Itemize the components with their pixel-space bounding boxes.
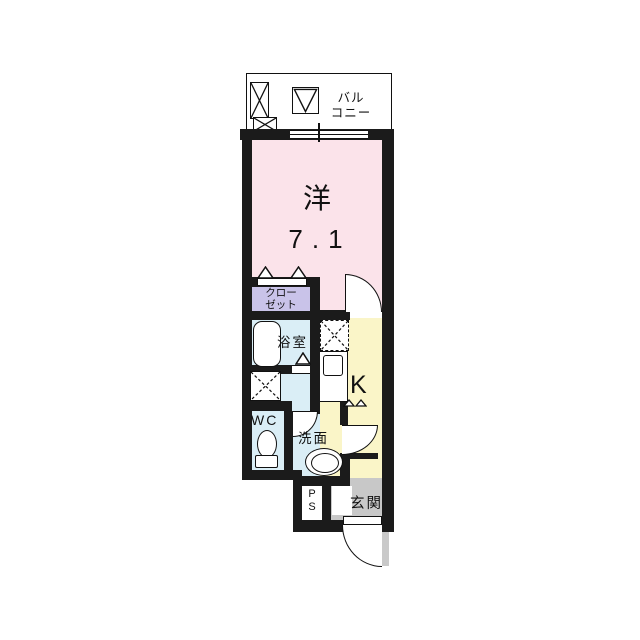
kitchen-caret-left bbox=[343, 399, 355, 407]
kitchen-label: K bbox=[350, 371, 367, 400]
wall-right bbox=[382, 129, 394, 532]
wall-outer-edge bbox=[382, 532, 389, 566]
wall-wc-top bbox=[242, 401, 292, 411]
triangle-down-icon bbox=[293, 88, 318, 113]
window-sliding bbox=[290, 130, 368, 139]
door-swing-entrance bbox=[342, 525, 382, 567]
bath-door-track bbox=[292, 365, 310, 374]
closet-fold-triangle-right bbox=[290, 266, 307, 279]
wall-wc-right bbox=[284, 411, 293, 470]
toilet-bowl-icon bbox=[257, 430, 277, 458]
bath-label: 浴室 bbox=[277, 331, 308, 351]
window-center-tick bbox=[318, 123, 320, 142]
balcony-storage-box bbox=[250, 82, 269, 119]
closet-label: クロー ゼット bbox=[252, 287, 310, 311]
western-room-label: 洋 7.1 bbox=[252, 177, 382, 255]
refrigerator-area bbox=[320, 320, 349, 351]
floor-plan: バル コニー bbox=[0, 0, 640, 640]
x-mark-icon bbox=[251, 83, 268, 118]
front-door-leaf bbox=[343, 516, 382, 525]
ac-unit-box bbox=[292, 87, 319, 114]
washing-machine-area bbox=[250, 371, 281, 401]
pipe-space-label: P S bbox=[302, 488, 322, 514]
entrance-label: 玄関 bbox=[350, 492, 383, 513]
wall-bath-right bbox=[310, 318, 320, 414]
dashed-x-icon bbox=[321, 321, 348, 350]
entrance-step bbox=[332, 486, 352, 515]
washroom-label: 洗面 bbox=[298, 427, 329, 447]
wall-ps-right bbox=[322, 478, 331, 522]
wall-closet-bottom bbox=[242, 311, 320, 320]
closet-door-track bbox=[257, 278, 307, 286]
balcony-label: バル コニー bbox=[326, 91, 376, 121]
wall-bottom bbox=[293, 520, 344, 532]
corridor-area bbox=[292, 374, 310, 414]
dashed-x-icon bbox=[251, 372, 280, 400]
closet-fold-triangle-left bbox=[257, 266, 274, 279]
kitchen-caret-right bbox=[355, 399, 367, 407]
sink-icon bbox=[305, 448, 343, 476]
stove-icon bbox=[323, 355, 343, 376]
bath-fold-triangle bbox=[295, 352, 311, 365]
wc-label: WC bbox=[251, 412, 278, 428]
toilet-tank-icon bbox=[255, 455, 278, 468]
